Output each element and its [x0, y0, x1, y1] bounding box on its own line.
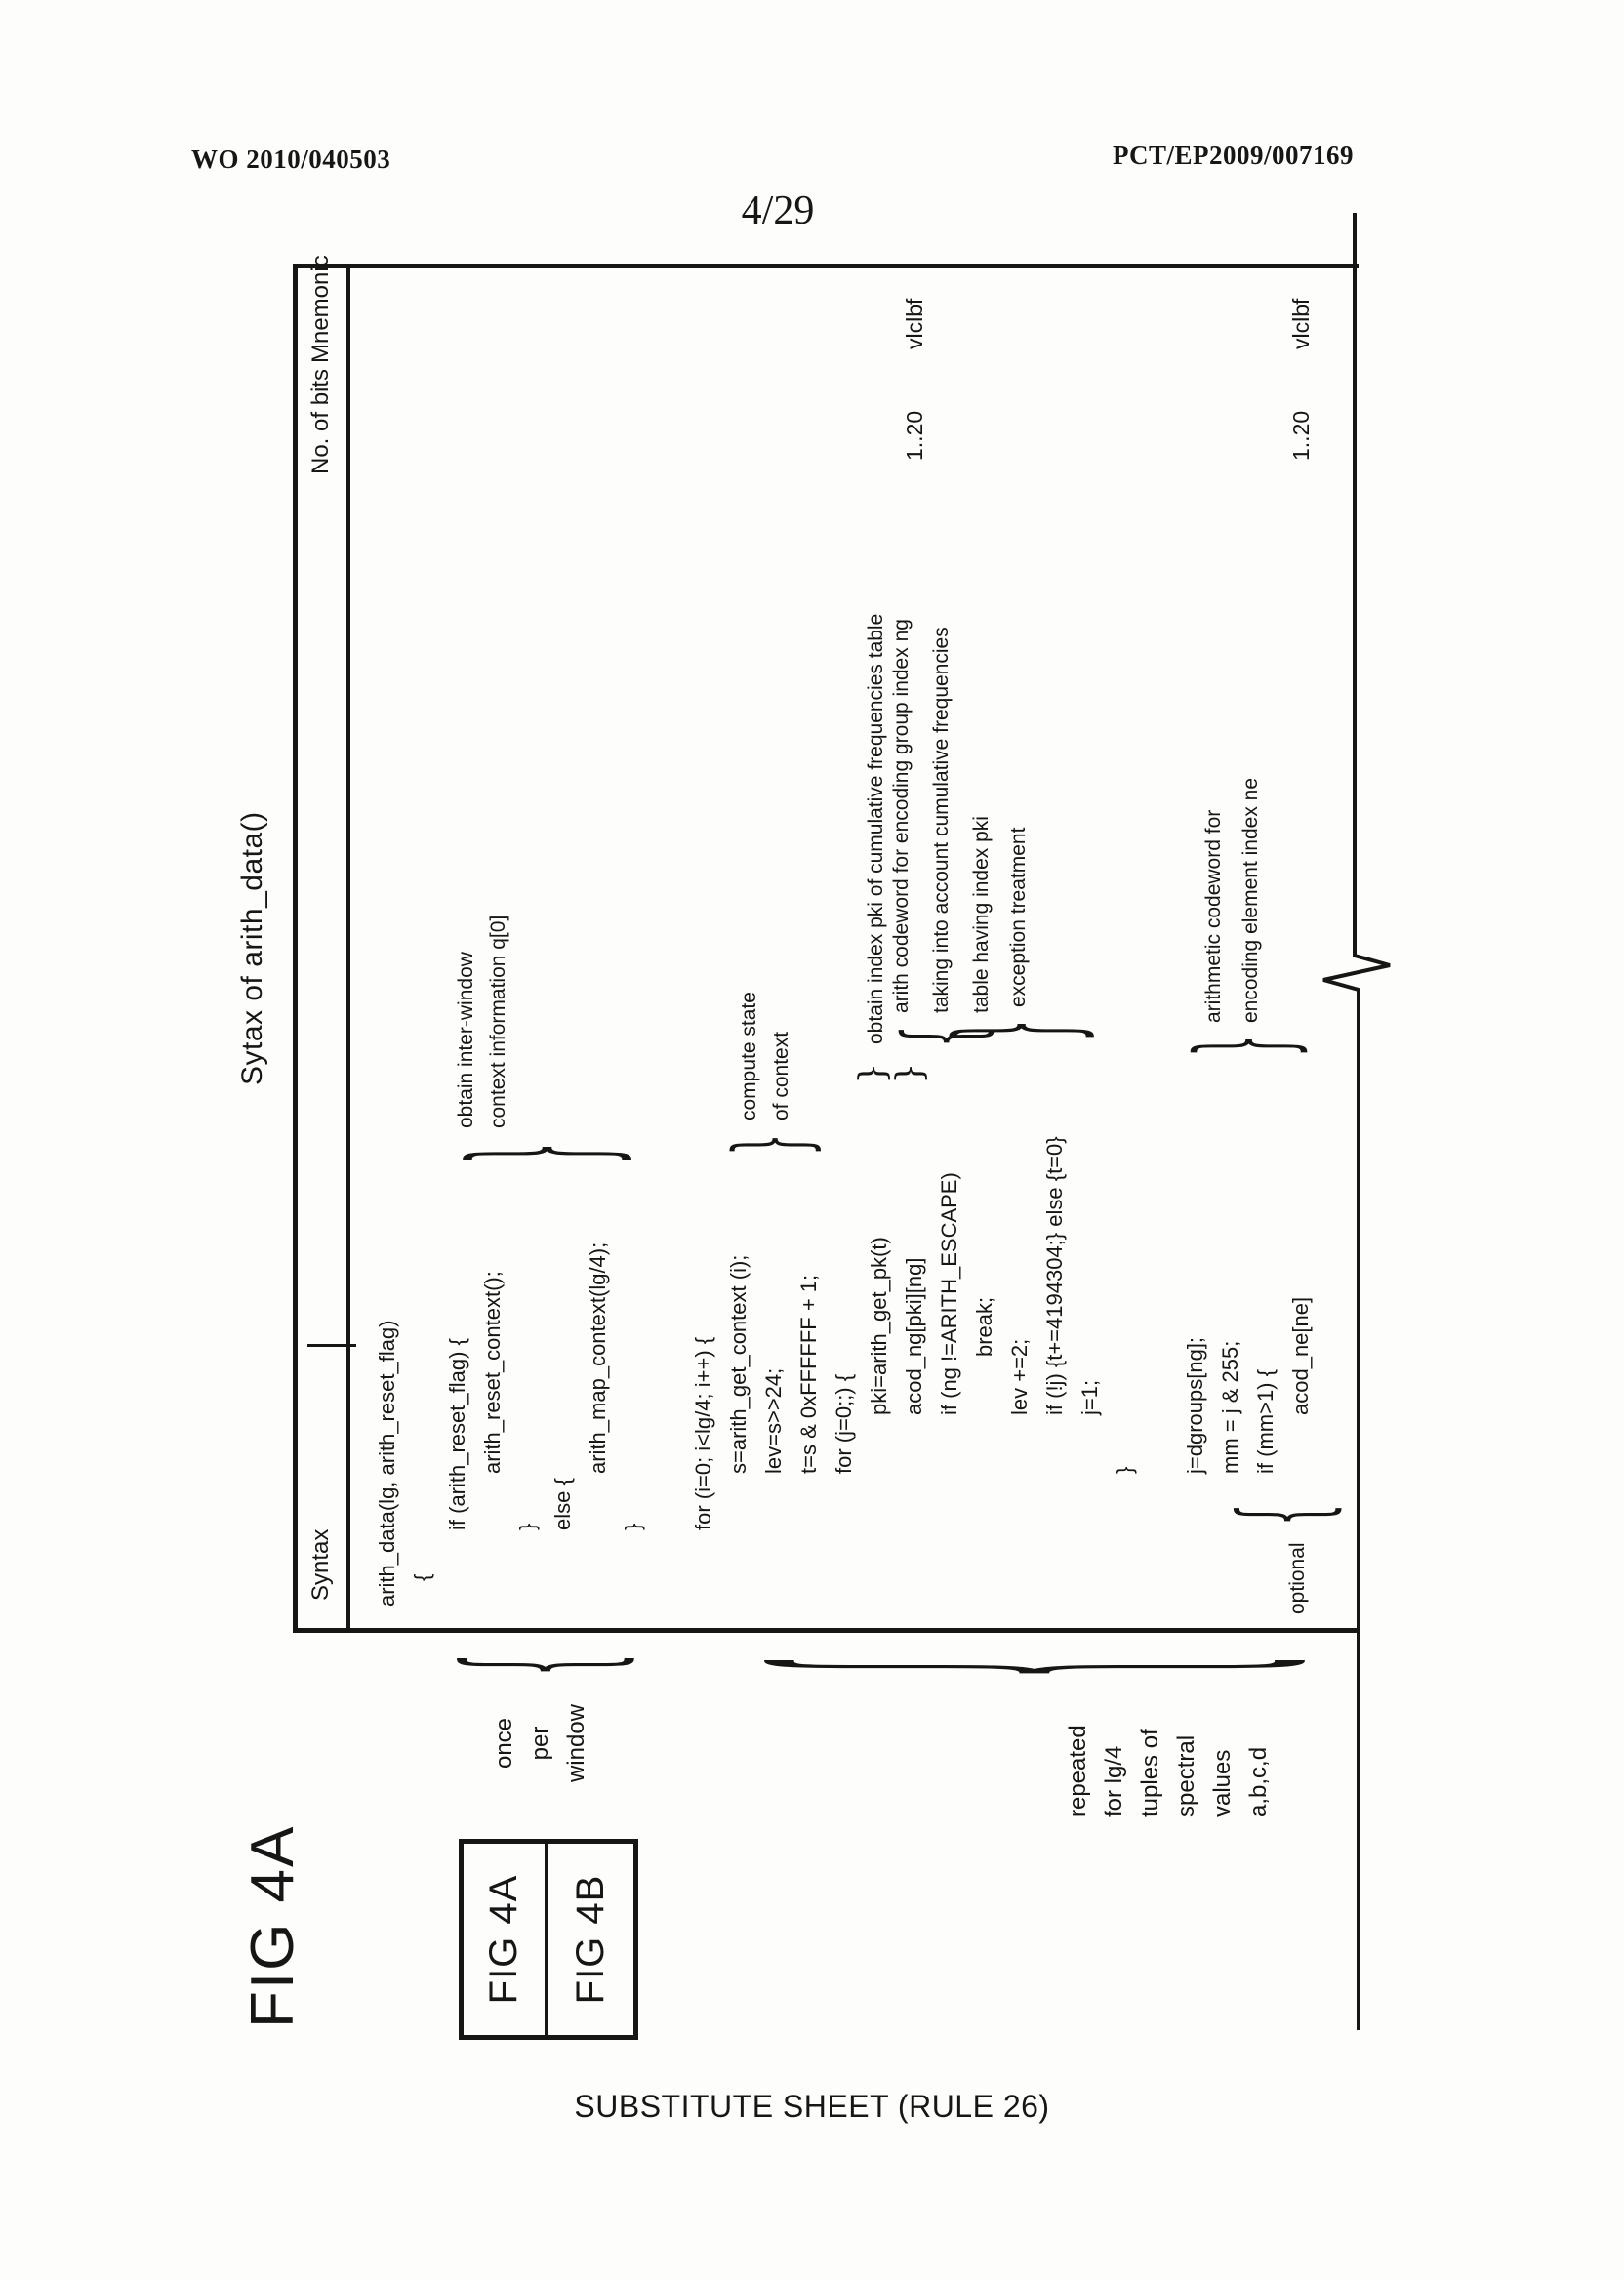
key-fig4b: FIG 4B [548, 1844, 633, 2035]
code-text: else { [550, 1478, 575, 1530]
annotation-acod-ng: arith codeword for encoding group index … [881, 619, 1001, 1013]
code-text: arith_reset_context(); [480, 1271, 505, 1474]
margin-note-line: once [486, 1681, 522, 1806]
annotation-line: context information q[0] [482, 916, 514, 1128]
code-row: arith_map_context(lg/4); [581, 268, 616, 1628]
margin-note-line: repeated [1060, 1671, 1096, 1817]
code-row: } [616, 268, 651, 1628]
syntax-table: Syntax No. of bits Mnemonic arith_data(l… [293, 264, 1359, 1633]
figure-title: Sytax of arith_data() [236, 811, 269, 1085]
margin-note-repeated: repeated for lg/4 tuples of spectral val… [1060, 1671, 1277, 1817]
margin-note-once-per-window: once per window [486, 1681, 594, 1806]
code-row: for (i=0; i<lg/4; i++) { [686, 268, 721, 1628]
annotation-line: table having index pki [961, 619, 1001, 1013]
code-text: } [1113, 1467, 1137, 1474]
header-no-of-bits: No. of bits [307, 369, 335, 474]
code-text: if (!j) {t+=4194304;} else {t=0} [1042, 1136, 1067, 1415]
mnemonic-value: vlclbf [1283, 299, 1319, 349]
code-row: if (!j) {t+=4194304;} else {t=0} [1037, 268, 1073, 1628]
header-divider [307, 1344, 356, 1347]
annotation-line: obtain inter-window [450, 916, 482, 1128]
annotation-line: compute state [733, 992, 765, 1120]
code-row: lev=s>>24; [756, 268, 792, 1628]
annotation-line: of context [765, 992, 797, 1120]
code-row: else { [546, 268, 581, 1628]
margin-note-line: a,b,c,d [1240, 1671, 1277, 1817]
header-syntax: Syntax [307, 1529, 335, 1601]
figure-key-box: FIG 4A FIG 4B [459, 1839, 638, 2040]
margin-note-line: per [522, 1681, 558, 1806]
annotation-line: arith codeword for encoding group index … [881, 619, 921, 1013]
code-row: } [510, 268, 546, 1628]
code-text: for (i=0; i<lg/4; i++) { [691, 1337, 715, 1530]
annotation-line: arithmetic codeword for [1196, 778, 1233, 1023]
annotation-compute-state: compute state of context [733, 992, 797, 1120]
code-row: j=1; [1073, 268, 1108, 1628]
code-text: lev=s>>24; [761, 1368, 786, 1474]
code-text: } [621, 1524, 645, 1530]
annotation-line: taking into account cumulative frequenci… [921, 619, 961, 1013]
annotation-inter-window: obtain inter-window context information … [450, 916, 514, 1128]
code-text: j=1; [1077, 1380, 1102, 1415]
no-of-bits-value: 1..20 [897, 411, 932, 461]
header-mnemonic: Mnemonic [307, 255, 335, 363]
code-text: { [410, 1574, 434, 1581]
code-text: arith_data(lg, arith_reset_flag) [375, 1321, 399, 1608]
code-row-blank [651, 268, 686, 1628]
brace-once-per-window [427, 1653, 650, 1677]
code-text: acod_ng[pki][ng] [902, 1258, 926, 1415]
code-text: pki=arith_get_pk(t) [867, 1237, 891, 1415]
code-text: mm = j & 255; [1218, 1341, 1242, 1474]
code-text: } [515, 1524, 540, 1530]
code-text: j=dgroups[ng]; [1183, 1337, 1207, 1474]
code-row: arith_data(lg, arith_reset_flag) [370, 268, 405, 1628]
code-row: t=s & 0xFFFFFF + 1; [792, 268, 827, 1628]
mnemonic-value: vlclbf [897, 299, 932, 349]
annotation-line: encoding element index ne [1233, 778, 1270, 1023]
code-text: break; [972, 1297, 996, 1357]
rotated-figure-layer: FIG 4A Sytax of arith_data() FIG 4A FIG … [0, 0, 1624, 2280]
patent-sheet-page: WO 2010/040503 PCT/EP2009/007169 4/29 SU… [0, 0, 1624, 2280]
code-text: if (ng !=ARITH_ESCAPE) [937, 1172, 961, 1415]
margin-note-line: spectral [1168, 1671, 1204, 1817]
code-text: t=s & 0xFFFFFF + 1; [796, 1275, 821, 1474]
figure-label: FIG 4A [238, 1825, 307, 2028]
code-row: s=arith_get_context (i); [721, 268, 756, 1628]
margin-note-line: window [558, 1681, 594, 1806]
table-header-row: Syntax No. of bits Mnemonic [298, 268, 350, 1628]
code-text: acod_ne[ne] [1288, 1297, 1313, 1415]
code-row: { [405, 268, 440, 1628]
code-text: s=arith_get_context (i); [726, 1255, 751, 1474]
code-row: acod_ne[ne] 1..20 vlclbf [1283, 268, 1319, 1628]
code-row: } [1108, 268, 1143, 1628]
code-text: if (mm>1) { [1253, 1369, 1278, 1474]
annotation-exception: exception treatment [1002, 828, 1035, 1007]
margin-note-line: values [1204, 1671, 1240, 1817]
annotation-acod-ne: arithmetic codeword for encoding element… [1196, 778, 1270, 1023]
code-row-blank [1143, 268, 1178, 1628]
code-text: if (arith_reset_flag) { [445, 1338, 469, 1530]
margin-note-line: for lg/4 [1096, 1671, 1132, 1817]
code-text: arith_map_context(lg/4); [586, 1242, 610, 1474]
code-row: for (j=0;;) { [827, 268, 862, 1628]
key-fig4a: FIG 4A [464, 1844, 548, 2035]
code-text: for (j=0;;) { [832, 1374, 856, 1474]
code-text: lev +=2; [1007, 1339, 1032, 1415]
margin-note-line: tuples of [1132, 1671, 1168, 1817]
no-of-bits-value: 1..20 [1283, 411, 1319, 461]
annotation-optional: optional [1281, 1542, 1314, 1614]
